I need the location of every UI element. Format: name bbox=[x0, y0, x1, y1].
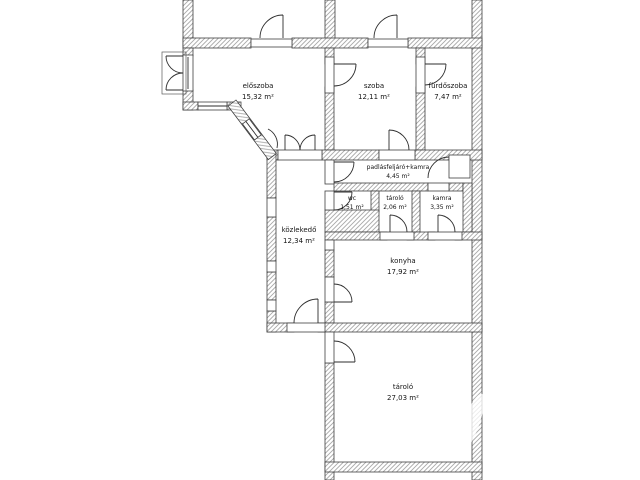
door-top-middle-room bbox=[374, 15, 397, 38]
room-label-kozlekedo: közlekedő 12,34 m² bbox=[282, 225, 317, 245]
door-threshold bbox=[251, 39, 292, 47]
room-label-szoba: szoba 12,11 m² bbox=[358, 82, 390, 101]
wall-segment bbox=[267, 272, 276, 300]
wall-segment bbox=[183, 102, 198, 110]
window bbox=[267, 300, 276, 311]
room-label-kamra: kamra 3,35 m² bbox=[430, 195, 454, 211]
window bbox=[267, 198, 276, 217]
room-area: 7,47 m² bbox=[434, 93, 462, 101]
wall-segment bbox=[463, 183, 472, 232]
room-label-padlasfeljaro: padlásfeljáró+kamra 4,45 m² bbox=[367, 164, 430, 180]
door-threshold bbox=[368, 39, 408, 47]
wall-segment bbox=[292, 38, 368, 48]
wall-segment bbox=[408, 38, 482, 48]
wall-segment bbox=[449, 183, 463, 191]
door-threshold bbox=[325, 277, 334, 302]
door-threshold bbox=[380, 232, 414, 240]
door-threshold bbox=[428, 232, 462, 240]
door-kamra bbox=[438, 215, 455, 232]
wall-segment bbox=[325, 210, 379, 232]
door-threshold bbox=[428, 183, 449, 191]
attic-stair-box bbox=[449, 155, 470, 178]
room-name: wc bbox=[348, 195, 356, 202]
room-area: 2,06 m² bbox=[383, 204, 407, 211]
door-threshold bbox=[325, 160, 334, 184]
room-area: 12,11 m² bbox=[358, 93, 390, 101]
door-threshold bbox=[325, 332, 334, 363]
room-label-konyha: konyha 17,92 m² bbox=[387, 257, 419, 276]
door-eloszoba-szoba bbox=[334, 64, 356, 86]
window bbox=[267, 261, 276, 272]
door-top-left-room bbox=[260, 15, 283, 38]
room-label-tarolo-kis: tároló 2,06 m² bbox=[383, 195, 407, 211]
room-name: kamra bbox=[432, 195, 451, 202]
room-name: tároló bbox=[386, 195, 404, 202]
room-name: előszoba bbox=[243, 81, 274, 90]
room-area: 3,35 m² bbox=[430, 204, 454, 211]
room-area: 15,32 m² bbox=[242, 93, 274, 101]
room-area: 4,45 m² bbox=[386, 173, 410, 180]
room-name: tároló bbox=[393, 383, 413, 391]
door-kozlekedo-folyoso bbox=[334, 162, 354, 182]
door-threshold bbox=[287, 323, 325, 332]
wall-segment bbox=[322, 150, 379, 160]
wall-segment bbox=[183, 38, 251, 48]
wall-segment bbox=[325, 232, 387, 240]
room-area: 27,03 m² bbox=[387, 394, 419, 402]
room-label-wc: wc 1,51 m² bbox=[340, 195, 364, 211]
room-label-eloszoba: előszoba 15,32 m² bbox=[242, 81, 274, 101]
watermark-smudge bbox=[453, 391, 490, 457]
floor-plan-page: előszoba 15,32 m² szoba 12,11 m² fürdősz… bbox=[0, 0, 640, 480]
wall-segment bbox=[371, 191, 379, 212]
door-tarolo-nagy bbox=[334, 341, 355, 362]
double-door-eloszoba-kozlekedo bbox=[285, 135, 315, 150]
room-label-furdoszoba: fürdőszoba 7,47 m² bbox=[429, 81, 468, 101]
room-name: fürdőszoba bbox=[429, 81, 468, 90]
wall-segment bbox=[412, 191, 420, 232]
door-kozlekedo-exterior bbox=[294, 299, 318, 323]
door-szoba-folyoso bbox=[389, 130, 409, 150]
openings bbox=[162, 39, 470, 363]
bay-window-casement bbox=[166, 56, 183, 90]
room-area: 12,34 m² bbox=[283, 237, 315, 245]
door-threshold bbox=[325, 191, 334, 210]
door-threshold bbox=[379, 150, 415, 160]
door-threshold bbox=[325, 57, 334, 93]
wall-segment bbox=[267, 217, 276, 261]
wall-segment bbox=[325, 462, 482, 472]
door-kozlekedo-konyha bbox=[334, 284, 352, 302]
wall-segment bbox=[325, 250, 334, 277]
room-name: közlekedő bbox=[282, 225, 317, 234]
floor-plan-drawing: előszoba 15,32 m² szoba 12,11 m² fürdősz… bbox=[0, 0, 640, 480]
room-name: padlásfeljáró+kamra bbox=[367, 164, 430, 171]
room-name: szoba bbox=[364, 82, 384, 90]
room-area: 1,51 m² bbox=[340, 204, 364, 211]
room-name: konyha bbox=[390, 257, 415, 265]
wall-segment bbox=[325, 302, 334, 323]
wall-segment bbox=[325, 87, 334, 150]
wall-segment bbox=[416, 87, 425, 150]
window bbox=[325, 240, 334, 250]
door-tarolo-kis bbox=[390, 215, 407, 232]
wall-segment bbox=[334, 183, 428, 191]
wall-segment bbox=[318, 323, 482, 332]
room-area: 17,92 m² bbox=[387, 268, 419, 276]
wall-segment bbox=[415, 150, 482, 160]
room-label-tarolo-nagy: tároló 27,03 m² bbox=[387, 383, 419, 402]
door-threshold bbox=[278, 150, 322, 160]
door-threshold bbox=[416, 57, 425, 93]
